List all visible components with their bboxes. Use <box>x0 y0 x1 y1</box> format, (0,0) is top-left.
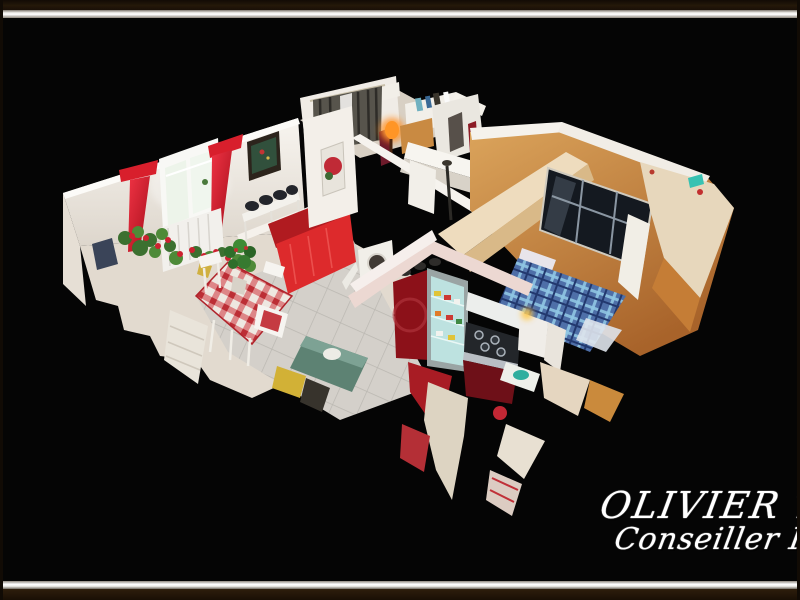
frame-bottom-edge <box>0 589 800 600</box>
smallroom-doorway <box>448 112 464 152</box>
agent-name: OLIVIER TIRA <box>597 487 800 526</box>
red-ball <box>493 406 507 420</box>
kitchen-right-wall <box>544 322 566 372</box>
right-cream-fragment <box>540 362 590 416</box>
painting-detail-gold <box>266 156 269 159</box>
bedroom <box>438 122 734 356</box>
frame-top-edge <box>0 0 800 10</box>
center-tall-fragment <box>424 382 468 500</box>
agent-signature: OLIVIER TIRA Conseiller Immo <box>592 487 800 557</box>
framed-scene: OLIVIER TIRA Conseiller Immo Living room… <box>0 0 800 600</box>
right-orange-fragment <box>584 380 624 422</box>
orange-lamp <box>385 121 399 139</box>
white-wing-fragment <box>497 424 545 479</box>
red-fragment <box>400 424 430 472</box>
frame-left-edge <box>0 0 3 600</box>
frame-bottom-silver-band <box>0 581 800 589</box>
flower-picture-bloom <box>324 157 342 175</box>
painting-detail-red <box>260 150 265 155</box>
floor-lamp-head <box>442 160 452 166</box>
red-speck-1 <box>697 189 703 195</box>
agent-title: Conseiller Immo <box>612 522 800 557</box>
bottom-red-white-fragment <box>486 470 522 516</box>
printer-blob <box>323 348 341 360</box>
frame-top-silver-band <box>0 10 800 18</box>
flower-picture-leaf <box>325 172 333 180</box>
red-speck-2 <box>650 170 655 175</box>
oven-light <box>521 308 533 320</box>
window-plant <box>202 179 208 185</box>
teal-bowl <box>513 370 529 380</box>
red-cabinet-left <box>393 270 429 360</box>
